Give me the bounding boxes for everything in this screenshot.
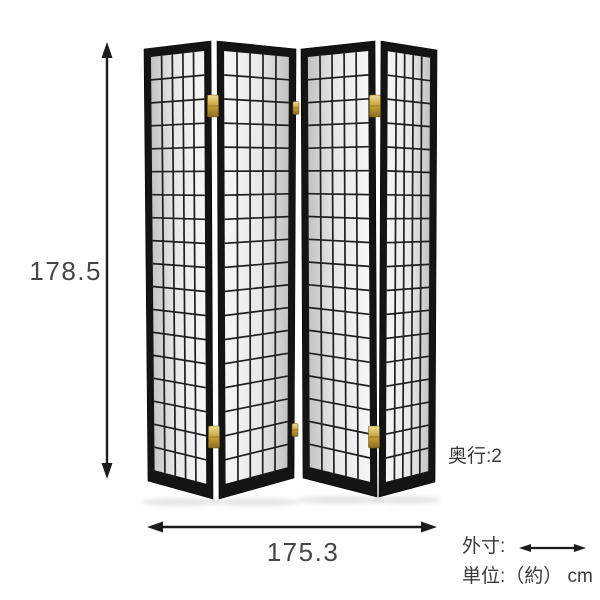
screen-panel-3-shadow: [297, 496, 383, 504]
product-dimension-diagram: 178.5 175.3 奥行:2 外寸: 単位:（約） cm: [0, 0, 600, 600]
depth-dimension-label: 奥行:2: [448, 447, 502, 468]
screen-panel-2: [217, 41, 296, 499]
screen-panel-4: [379, 41, 437, 497]
outer-dimension-legend-arrow: [519, 544, 586, 552]
screen-floor-shadows: [142, 496, 441, 506]
screen-panel-3: [301, 41, 377, 497]
screen-panel-1: [144, 41, 213, 499]
unit-label: 単位:（約） cm: [462, 567, 593, 588]
width-dimension-arrow-head: [421, 522, 437, 533]
height-dimension-arrow-head: [102, 42, 113, 58]
screen-panel-4-shadow: [373, 496, 441, 504]
height-dimension-label: 178.5: [29, 257, 102, 286]
shoji-screen-illustration: [0, 0, 600, 600]
outer-dimension-legend-label: 外寸:: [462, 537, 505, 558]
screen-panels: [144, 41, 437, 499]
width-dimension-arrow-head: [147, 522, 163, 533]
width-dimension-label: 175.3: [267, 538, 340, 567]
width-dimension-arrow: [147, 522, 437, 533]
outer-dimension-legend-arrow-head: [574, 544, 586, 552]
height-dimension-arrow-head: [102, 463, 113, 479]
screen-panel-2-shadow: [213, 498, 301, 506]
height-dimension-arrow: [102, 42, 113, 479]
outer-dimension-legend-arrow-head: [519, 544, 531, 552]
screen-panel-1-shadow: [142, 498, 219, 506]
